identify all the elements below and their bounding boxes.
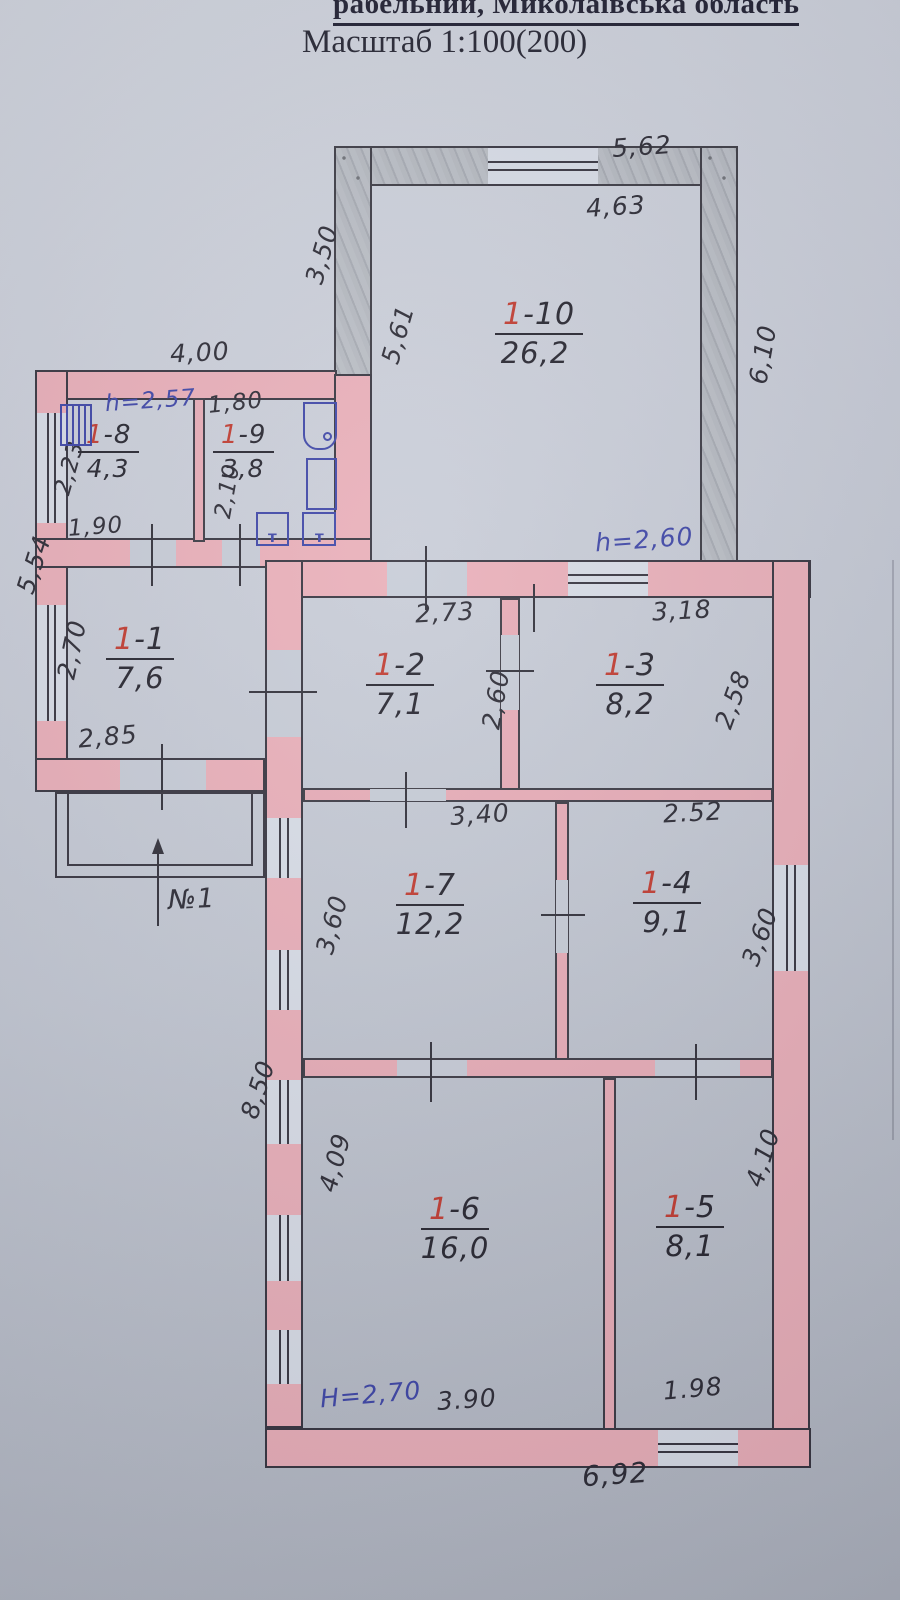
entrance-number: №1 xyxy=(167,883,216,916)
room-area: 12,2 xyxy=(390,907,470,941)
boiler-valve-icon xyxy=(323,432,332,441)
height-note-1-8: h=2,57 xyxy=(104,385,197,417)
room-area: 7,1 xyxy=(365,687,435,721)
main-top-wall xyxy=(265,560,811,598)
partition-1-8-1-9 xyxy=(193,398,205,542)
veranda-right-wall xyxy=(700,146,738,570)
toilet-icon: т xyxy=(256,512,289,546)
partition-1-6-1-5 xyxy=(603,1078,616,1430)
door-opening-1-1-to-1-2 xyxy=(267,650,301,737)
main-right-wall xyxy=(772,560,810,1468)
dim-1-80: 1,80 xyxy=(207,387,265,419)
dim-4-00: 4,00 xyxy=(169,336,230,368)
door-tick-1-7-to-1-6 xyxy=(430,1042,432,1102)
room-number-red: 1 xyxy=(664,1190,684,1225)
main-top-window xyxy=(568,560,648,598)
room-number-black: -6 xyxy=(449,1192,481,1227)
dim-2-73: 2,73 xyxy=(414,596,475,628)
door-tick-1-2-to-1-7 xyxy=(405,772,407,828)
bottom-wall-window-1-5 xyxy=(658,1428,738,1468)
dim-3-40: 3,40 xyxy=(449,798,511,831)
dim-6-92: 6,92 xyxy=(581,1456,649,1494)
room-area: 4,3 xyxy=(78,454,138,483)
door-tick-1-7-to-1-4 xyxy=(541,914,585,916)
entrance-arrow-shaft xyxy=(157,850,159,926)
room-label-1-2: 1-2 7,1 xyxy=(365,648,435,721)
dim-2-85: 2,85 xyxy=(77,719,139,753)
left-wall-window-1-7a xyxy=(265,818,303,878)
room-number-black: -5 xyxy=(684,1190,716,1225)
room-number-red: 1 xyxy=(221,420,239,450)
room-number-black: -1 xyxy=(134,622,166,657)
scale-note: Масштаб 1:100(200) xyxy=(302,24,587,61)
room-number-black: -2 xyxy=(394,648,426,683)
room-label-1-1: 1-1 7,6 xyxy=(105,622,175,695)
left-wall-window-1-6b xyxy=(265,1215,303,1281)
room-number-red: 1 xyxy=(604,648,624,683)
dim-4-09: 4,09 xyxy=(313,1130,356,1195)
dim-1-90: 1,90 xyxy=(67,512,124,542)
room-number-black: -9 xyxy=(239,420,267,450)
height-note-veranda: h=2,60 xyxy=(594,522,694,558)
left-wall-window-1-7b xyxy=(265,950,303,1010)
room-area: 3,8 xyxy=(213,454,273,483)
dim-1-98: 1.98 xyxy=(662,1371,724,1405)
room-number-red: 1 xyxy=(641,866,661,901)
dim-3-60-left: 3,60 xyxy=(310,892,353,957)
dim-4-63: 4,63 xyxy=(585,190,647,223)
dim-5-62: 5,62 xyxy=(611,130,673,163)
dim-tick-top-wall xyxy=(533,584,535,632)
document-title: рабельний, Миколаївська область xyxy=(333,0,799,26)
room-number-red: 1 xyxy=(503,297,523,332)
door-tick-1-9 xyxy=(239,524,241,586)
door-opening-1-7-to-1-6 xyxy=(397,1060,467,1076)
bathtub-icon xyxy=(306,458,337,510)
dim-6-10: 6,10 xyxy=(743,323,782,387)
veranda-left-wall xyxy=(334,146,372,382)
dim-3-18: 3,18 xyxy=(651,594,712,626)
room-label-1-6: 1-6 16,0 xyxy=(415,1192,495,1265)
room-area: 9,1 xyxy=(632,905,702,939)
porch-outline-inner xyxy=(67,792,253,866)
toilet-mark: т xyxy=(315,528,324,546)
room-number-red: 1 xyxy=(374,648,394,683)
room-area: 7,6 xyxy=(105,661,175,695)
dim-2-58: 2,58 xyxy=(709,667,757,733)
door-opening-1-1-entry xyxy=(120,760,206,790)
door-opening-1-4-to-1-5 xyxy=(655,1060,740,1076)
room-label-1-7: 1-7 12,2 xyxy=(390,868,470,941)
door-opening-1-7-to-1-4 xyxy=(556,880,568,953)
dim-2-52: 2.52 xyxy=(662,796,723,828)
room-label-1-3: 1-3 8,2 xyxy=(595,648,665,721)
veranda-top-window xyxy=(488,146,598,186)
room-number-black: -8 xyxy=(104,420,132,450)
room-label-1-5: 1-5 8,1 xyxy=(655,1190,725,1263)
door-tick-1-8 xyxy=(151,524,153,586)
toilet-icon: т xyxy=(302,512,336,546)
door-opening-veranda xyxy=(387,562,467,596)
room-area: 16,0 xyxy=(415,1231,495,1265)
toilet-mark: т xyxy=(268,528,277,546)
photo-edge-line xyxy=(892,560,894,1140)
dim-5-61: 5,61 xyxy=(376,302,420,367)
floor-plan-photo: рабельний, Миколаївська область Масштаб … xyxy=(0,0,900,1600)
room-number-black: -10 xyxy=(523,297,575,332)
dim-3-90: 3.90 xyxy=(436,1383,498,1416)
door-opening-1-2-to-1-7 xyxy=(370,789,446,801)
door-opening-1-8 xyxy=(130,540,176,566)
left-wall-window-1-6c xyxy=(265,1330,303,1384)
room-number-red: 1 xyxy=(429,1192,449,1227)
door-tick-1-1-to-1-2 xyxy=(249,691,317,693)
door-tick-1-4-to-1-5 xyxy=(695,1044,697,1100)
room-label-1-4: 1-4 9,1 xyxy=(632,866,702,939)
room-number-red: 1 xyxy=(404,868,424,903)
entrance-arrow-head xyxy=(152,838,164,854)
room-number-red: 1 xyxy=(114,622,134,657)
room-label-1-10: 1-10 26,2 xyxy=(495,297,575,370)
door-opening-1-9 xyxy=(222,540,260,566)
stove-icon xyxy=(60,404,92,446)
boiler-icon xyxy=(303,402,337,450)
room-number-black: -3 xyxy=(624,648,656,683)
room-area: 8,2 xyxy=(595,687,665,721)
room-area: 8,1 xyxy=(655,1229,725,1263)
room-number-black: -7 xyxy=(424,868,456,903)
height-note-main: H=2,70 xyxy=(319,1376,423,1414)
room-number-black: -4 xyxy=(661,866,693,901)
room-label-1-9: 1-9 3,8 xyxy=(213,420,273,483)
room-area: 26,2 xyxy=(495,336,575,370)
